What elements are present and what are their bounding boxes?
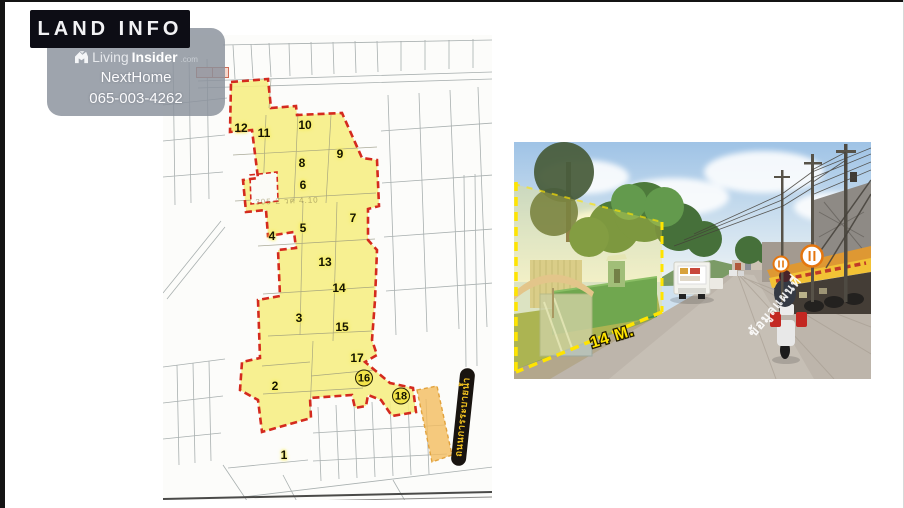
- page-title: LAND INFO: [38, 18, 183, 41]
- map-stamp-note: 305-2 วค 4.10: [255, 193, 319, 208]
- far-car: [729, 270, 737, 276]
- restaurant-poi-icon: [774, 257, 789, 272]
- parcel-number: 11: [258, 126, 271, 140]
- road-strip-highlight: [417, 386, 452, 462]
- land-info-title-box: LAND INFO: [30, 10, 190, 48]
- agent-name: NextHome: [101, 67, 172, 88]
- land-info-flyer: LAND INFO LivingInsider.com NextHome 065…: [0, 0, 904, 508]
- parcel-number: 17: [350, 351, 363, 365]
- parcel-number: 3: [296, 311, 303, 325]
- brand-living: Living: [92, 49, 129, 65]
- parcel-number: 2: [272, 379, 279, 393]
- restaurant-poi-icon: [802, 246, 823, 267]
- living-insider-logo-icon: [74, 51, 89, 64]
- parcel-number: 13: [318, 255, 331, 269]
- parcel-number: 16: [355, 370, 373, 387]
- street-photo-drawing: ข้อมูลแผนที่ 14 M.: [514, 142, 871, 379]
- agent-phone: 065-003-4262: [89, 88, 182, 109]
- parcel-number: 9: [337, 147, 344, 161]
- parcel-number: 1: [281, 448, 288, 462]
- frame-top-edge: [0, 0, 904, 2]
- living-insider-logo: LivingInsider.com: [74, 49, 198, 65]
- parcel-number: 7: [350, 211, 357, 225]
- parcel-number: 18: [392, 388, 410, 405]
- parcel-number: 8: [299, 156, 306, 170]
- brand-insider: Insider: [132, 49, 178, 65]
- distant-roof: [745, 263, 751, 271]
- far-car: [738, 271, 744, 276]
- frame-left-edge: [0, 0, 5, 508]
- parcel-number: 12: [234, 121, 247, 135]
- parcel-number: 6: [300, 178, 307, 192]
- box-truck: [670, 262, 714, 304]
- distant-roof: [735, 263, 741, 271]
- parcel-number: 14: [332, 281, 345, 295]
- parcel-number: 5: [300, 221, 307, 235]
- parcel-number: 4: [269, 229, 276, 243]
- parcel-number: 10: [298, 118, 311, 132]
- parcel-number: 15: [335, 320, 348, 334]
- brand-suffix: .com: [181, 55, 198, 64]
- pickup: [710, 278, 723, 289]
- street-photo: ข้อมูลแผนที่ 14 M.: [514, 142, 871, 379]
